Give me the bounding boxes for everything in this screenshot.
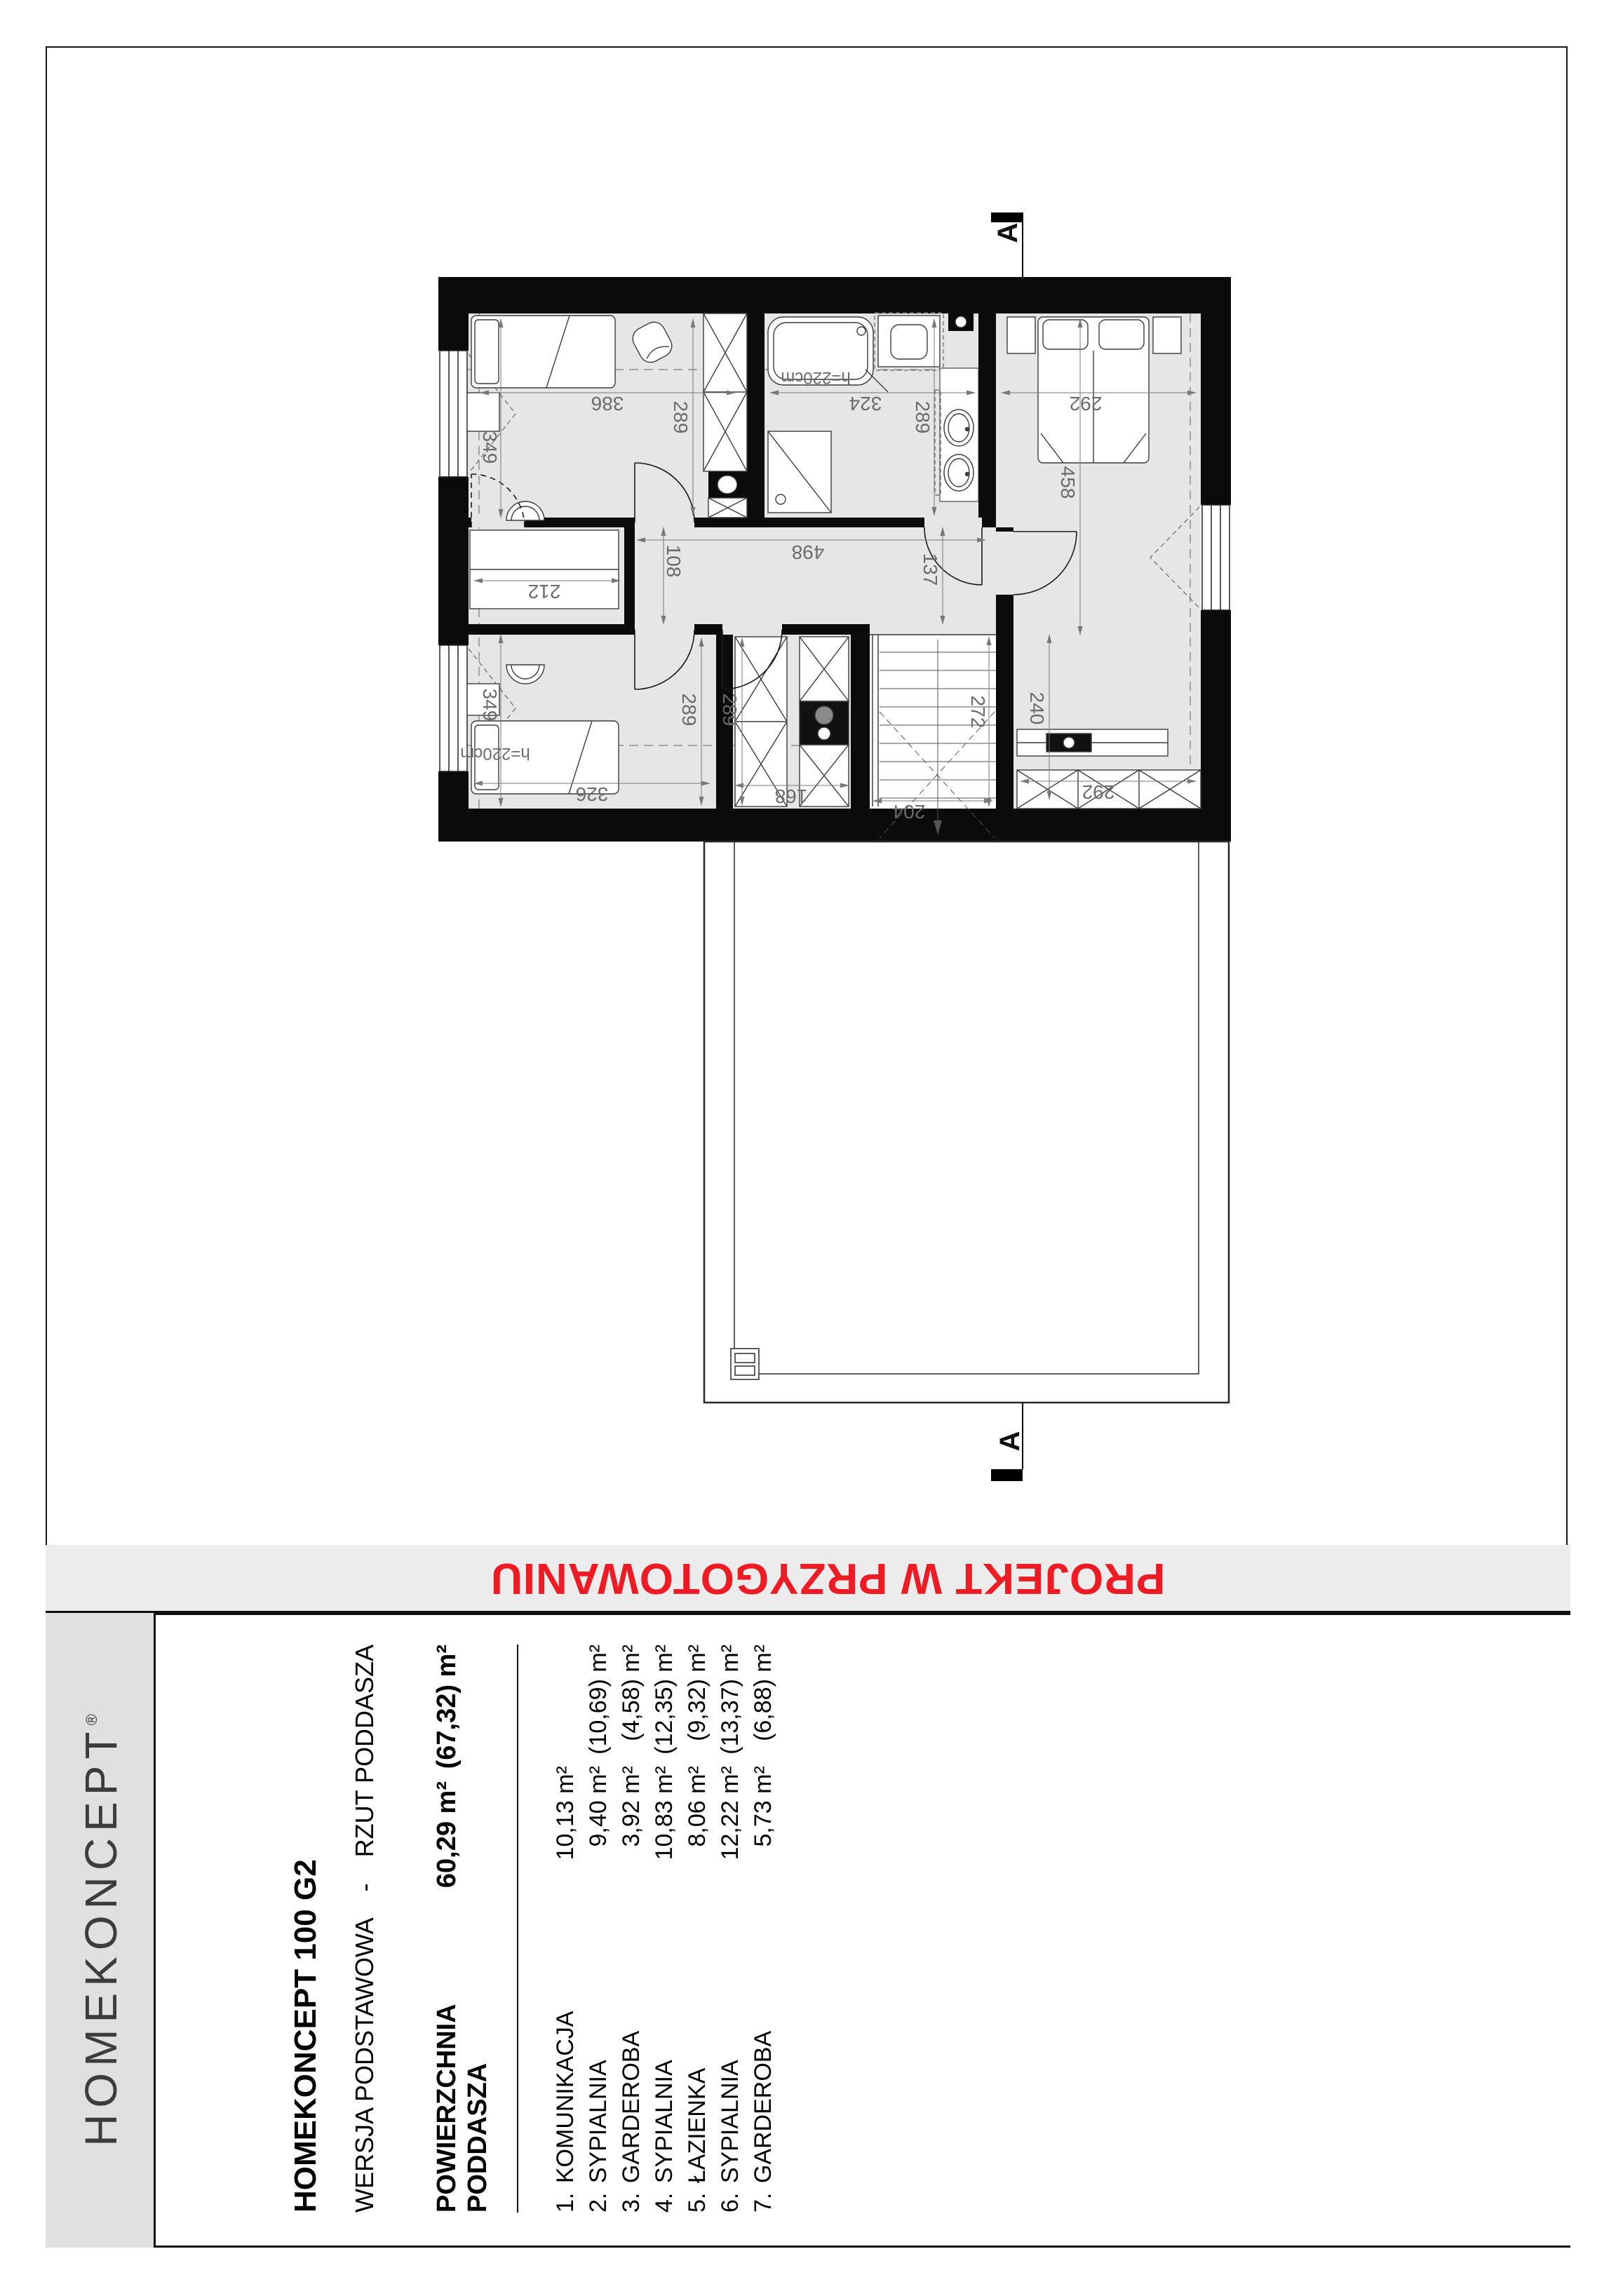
area-label: POWIERZCHNIA PODDASZA [431,1936,493,2213]
room-area: 10,83 m² [648,1766,681,1996]
room-row: 3. GARDEROBA 3,92 m² (4,58) m² [615,1645,648,2213]
room-area: 9,40 m² [582,1766,615,1996]
room-area-gross: (13,37) m² [714,1645,747,1766]
room-row: 5. ŁAZIENKA 8,06 m² (9,32) m² [681,1645,714,2213]
room-row: 2. SYPIALNIA 9,40 m² (10,69) m² [582,1645,615,2213]
headroom-label-bath: h=220cm [781,368,850,387]
registered-mark-icon: ® [83,1714,100,1725]
room-area-gross: (9,32) m² [681,1645,714,1766]
version-label: WERSJA PODSTAWOWA [351,1917,379,2213]
dim-window-bl: 349 [479,689,501,722]
dim-bedroom-tl-width: 386 [591,393,624,414]
room-area: 10,13 m² [549,1766,582,1996]
room-area-gross: (12,35) m² [648,1645,681,1766]
area-summary: POWIERZCHNIA PODDASZA 60,29 m² (67,32) m… [431,1645,518,2213]
bed-double [1038,317,1149,463]
nightstand [1007,317,1035,353]
dim-window-tl: 349 [479,431,501,464]
room-name: GARDEROBA [747,1997,780,2184]
room-row: 4. SYPIALNIA 10,83 m² (12,35) m² [648,1645,681,2213]
dim-bath-width: 324 [849,393,882,414]
nightstand [1153,317,1181,353]
dim-wardrobe-r-width: 292 [1082,781,1115,803]
tv-dot [1063,737,1075,748]
drawing-sheet: A A 386 [0,0,1623,2296]
room-row: 6. SYPIALNIA 12,22 m² (13,37) m² [714,1645,747,2213]
room-name: KOMUNIKACJA [549,1997,582,2184]
room-name: SYPIALNIA [714,1997,747,2184]
area-value: 60,29 m² [431,1781,493,1936]
room-row: 7. GARDEROBA 5,73 m² (6,88) m² [747,1645,780,2213]
desk-right [1017,729,1168,756]
bed-single-top-left [471,316,615,388]
dim-bedroom-bl-width: 326 [576,783,609,805]
drawing-label: RZUT PODDASZA [351,1645,379,1857]
room-area-gross [549,1645,582,1766]
logo-cell: HOMEKONCEPT® [46,1613,156,2248]
room-list: 1. KOMUNIKACJA 10,13 m² 2. SYPIALNIA 9,4… [549,1613,780,2213]
niche-washbasin [718,475,737,494]
area-gross-value: (67,32) m² [431,1645,493,1781]
dim-bedroom-tl-depth: 289 [670,401,692,434]
dim-hall-depth-right: 137 [920,553,941,586]
separator: - [351,1883,379,1891]
window-left-top [440,351,467,477]
title-block: HOMEKONCEPT 100 G2 WERSJA PODSTAWOWA - R… [156,1613,1570,2248]
nightstand [467,393,499,431]
dim-stairs-width: 204 [893,801,926,823]
version-line: WERSJA PODSTAWOWA - RZUT PODDASZA [351,1645,379,2213]
wardrobe-niche-cell [708,498,747,518]
room-area-gross: (10,69) m² [582,1645,615,1766]
project-title: HOMEKONCEPT 100 G2 [289,1613,323,2213]
banner-text: PROJEKT W PRZYGOTOWANIU [490,1553,1165,1603]
dim-bedroom-r-width: 292 [1070,393,1103,414]
wardrobe-garderoba-left-col [735,637,787,806]
headroom-label-bedroom: h=220cm [460,744,530,763]
chimney [731,1349,759,1379]
double-washbasin-counter [935,368,978,501]
status-banner: PROJEKT W PRZYGOTOWANIU [46,1545,1570,1613]
vent-opening [955,316,967,327]
dim-wardrobe-r-depth: 240 [1026,692,1048,725]
dim-bedroom-bl-depth: 289 [678,694,700,727]
room-name: SYPIALNIA [648,1997,681,2184]
floor-plan: A A 386 [393,168,1305,1501]
dim-stairs-depth: 272 [967,696,989,729]
section-label-bottom: A [995,1431,1025,1452]
dim-garderoba-center-depth: 289 [719,694,741,727]
dim-bedroom-r-depth: 458 [1057,466,1079,499]
section-label-top: A [992,223,1023,243]
dim-garderoba-left-width: 212 [528,581,561,602]
washbasin-cabinet [875,313,943,370]
brand-logo: HOMEKONCEPT® [75,1714,127,2147]
room-name: GARDEROBA [615,1997,648,2184]
room-area: 3,92 m² [615,1766,648,1996]
room-row: 1. KOMUNIKACJA 10,13 m² [549,1645,582,2213]
room-name: SYPIALNIA [582,1997,615,2184]
lower-floor-outline [704,842,1229,1403]
room-area-gross: (6,88) m² [747,1645,780,1766]
room-area: 5,73 m² [747,1766,780,1996]
dim-hall-depth-left: 108 [663,545,685,578]
dim-bath-depth: 289 [912,401,934,434]
window-right [1202,505,1230,610]
shower [768,431,831,513]
dim-hall-width: 498 [792,541,825,563]
room-area-gross: (4,58) m² [615,1645,648,1766]
washer [800,701,849,745]
room-area: 12,22 m² [714,1766,747,1996]
room-name: ŁAZIENKA [681,1997,714,2184]
dim-garderoba-center-width: 168 [775,785,808,807]
room-area: 8,06 m² [681,1766,714,1996]
